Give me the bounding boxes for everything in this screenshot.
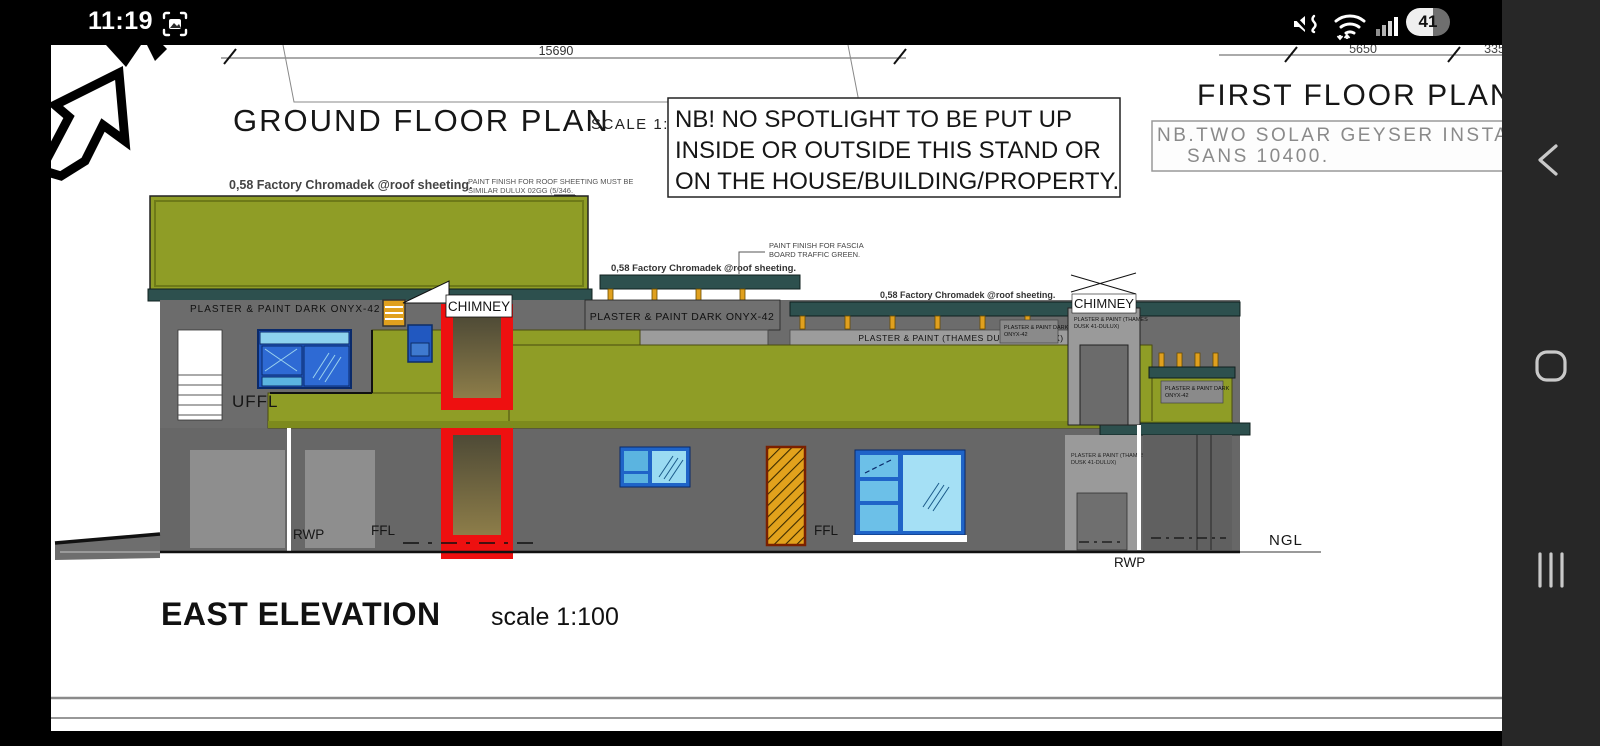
roof-sheeting-label-left: 0,58 Factory Chromadek @roof sheeting. bbox=[229, 178, 473, 192]
door-hatched bbox=[767, 447, 805, 545]
battery-indicator: 41 bbox=[1406, 8, 1450, 36]
plaster-onyx-label-left: PLASTER & PAINT DARK ONYX-42 bbox=[190, 304, 380, 315]
downpipe-right bbox=[1137, 425, 1141, 550]
clock: 11:19 bbox=[88, 7, 153, 36]
solar-line2: SANS 10400. bbox=[1187, 146, 1330, 167]
dimension-top-right: 5650 3350 bbox=[1219, 45, 1502, 62]
plaster-thames-small-d1: PLASTER & PAINT (THAMES bbox=[1071, 453, 1145, 459]
home-icon bbox=[1537, 352, 1565, 380]
window-small-blue bbox=[408, 325, 432, 362]
plaster-thames-small-d2: DUSK 41-DULUX) bbox=[1071, 460, 1116, 466]
roof-slab-left bbox=[148, 196, 592, 301]
dimension-top: 15690 bbox=[221, 45, 906, 102]
downpipe-left bbox=[287, 428, 291, 552]
east-elevation-title: EAST ELEVATION bbox=[161, 596, 441, 632]
rwp-label-left: RWP bbox=[293, 527, 324, 542]
fascia-line1: PAINT FINISH FOR FASCIA bbox=[769, 241, 864, 250]
chimney-label-left: CHIMNEY bbox=[448, 299, 510, 314]
drawing-canvas[interactable]: 15690 5650 3350 GROUND FLOOR PLAN SCALE … bbox=[51, 45, 1502, 731]
dim-15690: 15690 bbox=[539, 45, 574, 58]
plaster-onyx-small-b2: ONYX-42 bbox=[1165, 393, 1189, 399]
window-large bbox=[853, 450, 967, 542]
first-floor-plan-title: FIRST FLOOR PLAN bbox=[1197, 79, 1502, 112]
plaster-thames-small-c2: DUSK 41-DULUX) bbox=[1074, 324, 1119, 330]
recents-icon bbox=[1540, 554, 1562, 586]
plaster-onyx-small-a2: ONYX-42 bbox=[1004, 332, 1028, 338]
dim-3350: 3350 bbox=[1484, 45, 1502, 56]
status-bar: 11:19 41 bbox=[0, 0, 1600, 45]
stairs bbox=[178, 330, 222, 420]
solar-geyser-note: NB.TWO SOLAR GEYSER INSTALL SANS 10400. bbox=[1152, 121, 1502, 171]
ngl-label: NGL bbox=[1269, 532, 1303, 549]
plaster-onyx-small-a1: PLASTER & PAINT DARK bbox=[1004, 325, 1069, 331]
uffl-label: UFFL bbox=[232, 392, 279, 411]
solar-line1: NB.TWO SOLAR GEYSER INSTALL bbox=[1157, 125, 1502, 146]
phone-screen: 11:19 41 bbox=[0, 0, 1600, 746]
ffl-label-right: FFL bbox=[814, 523, 838, 538]
spotlight-line3: ON THE HOUSE/BUILDING/PROPERTY. bbox=[675, 168, 1119, 195]
battery-percent: 41 bbox=[1406, 8, 1450, 36]
signal-icon bbox=[1374, 9, 1402, 39]
fascia-middle: 0,58 Factory Chromadek @roof sheeting. bbox=[600, 263, 800, 301]
window-upper-left bbox=[258, 330, 351, 388]
spotlight-note: NB! NO SPOTLIGHT TO BE PUT UP INSIDE OR … bbox=[668, 98, 1120, 197]
floor-plan-drawing: 15690 5650 3350 GROUND FLOOR PLAN SCALE … bbox=[51, 45, 1502, 731]
garage-panel-1 bbox=[190, 450, 285, 548]
east-elevation-scale: scale 1:100 bbox=[491, 603, 619, 631]
wifi-icon bbox=[1330, 9, 1370, 41]
plaster-thames-small-c1: PLASTER & PAINT (THAMES bbox=[1074, 317, 1148, 323]
plaster-onyx-small-b1: PLASTER & PAINT DARK bbox=[1165, 386, 1230, 392]
wall-right-light: PLASTER & PAINT (THAMES DUSK 41-DULUX) bbox=[1065, 435, 1145, 550]
spotlight-line2: INSIDE OR OUTSIDE THIS STAND OR bbox=[675, 137, 1101, 164]
roof-sheeting-label-mid: 0,58 Factory Chromadek @roof sheeting. bbox=[611, 263, 796, 274]
mute-icon bbox=[1290, 9, 1324, 39]
back-button[interactable] bbox=[1531, 140, 1571, 180]
wall-right-dark bbox=[1143, 435, 1232, 550]
dim-5650: 5650 bbox=[1349, 45, 1377, 56]
chimney-right: PLASTER & PAINT (THAMES DUSK 41-DULUX) C… bbox=[1068, 273, 1148, 425]
window-middle bbox=[620, 447, 690, 487]
north-arrow bbox=[51, 45, 167, 176]
navigation-bar bbox=[1502, 0, 1600, 746]
home-button[interactable] bbox=[1531, 346, 1571, 386]
fascia-line2: BOARD TRAFFIC GREEN. bbox=[769, 250, 860, 259]
rwp-label-right: RWP bbox=[1114, 555, 1145, 570]
roof-paint-line1: PAINT FINISH FOR ROOF SHEETING MUST BE bbox=[468, 177, 633, 186]
spotlight-line1: NB! NO SPOTLIGHT TO BE PUT UP bbox=[675, 106, 1072, 133]
plaster-onyx-label-centre: PLASTER & PAINT DARK ONYX-42 bbox=[590, 311, 775, 323]
vent-yellow bbox=[383, 300, 405, 326]
ffl-label-left: FFL bbox=[371, 523, 395, 538]
recents-button[interactable] bbox=[1531, 550, 1571, 590]
ground-floor-plan-title: GROUND FLOOR PLAN bbox=[233, 103, 610, 138]
back-icon bbox=[1540, 146, 1556, 174]
roof-paint-line2: SIMILAR DULUX 02GG (5/346. bbox=[468, 186, 573, 195]
roof-sheeting-label-right: 0,58 Factory Chromadek @roof sheeting. bbox=[880, 290, 1055, 300]
screenshot-icon bbox=[160, 9, 190, 39]
chimney-label-right: CHIMNEY bbox=[1074, 296, 1134, 311]
